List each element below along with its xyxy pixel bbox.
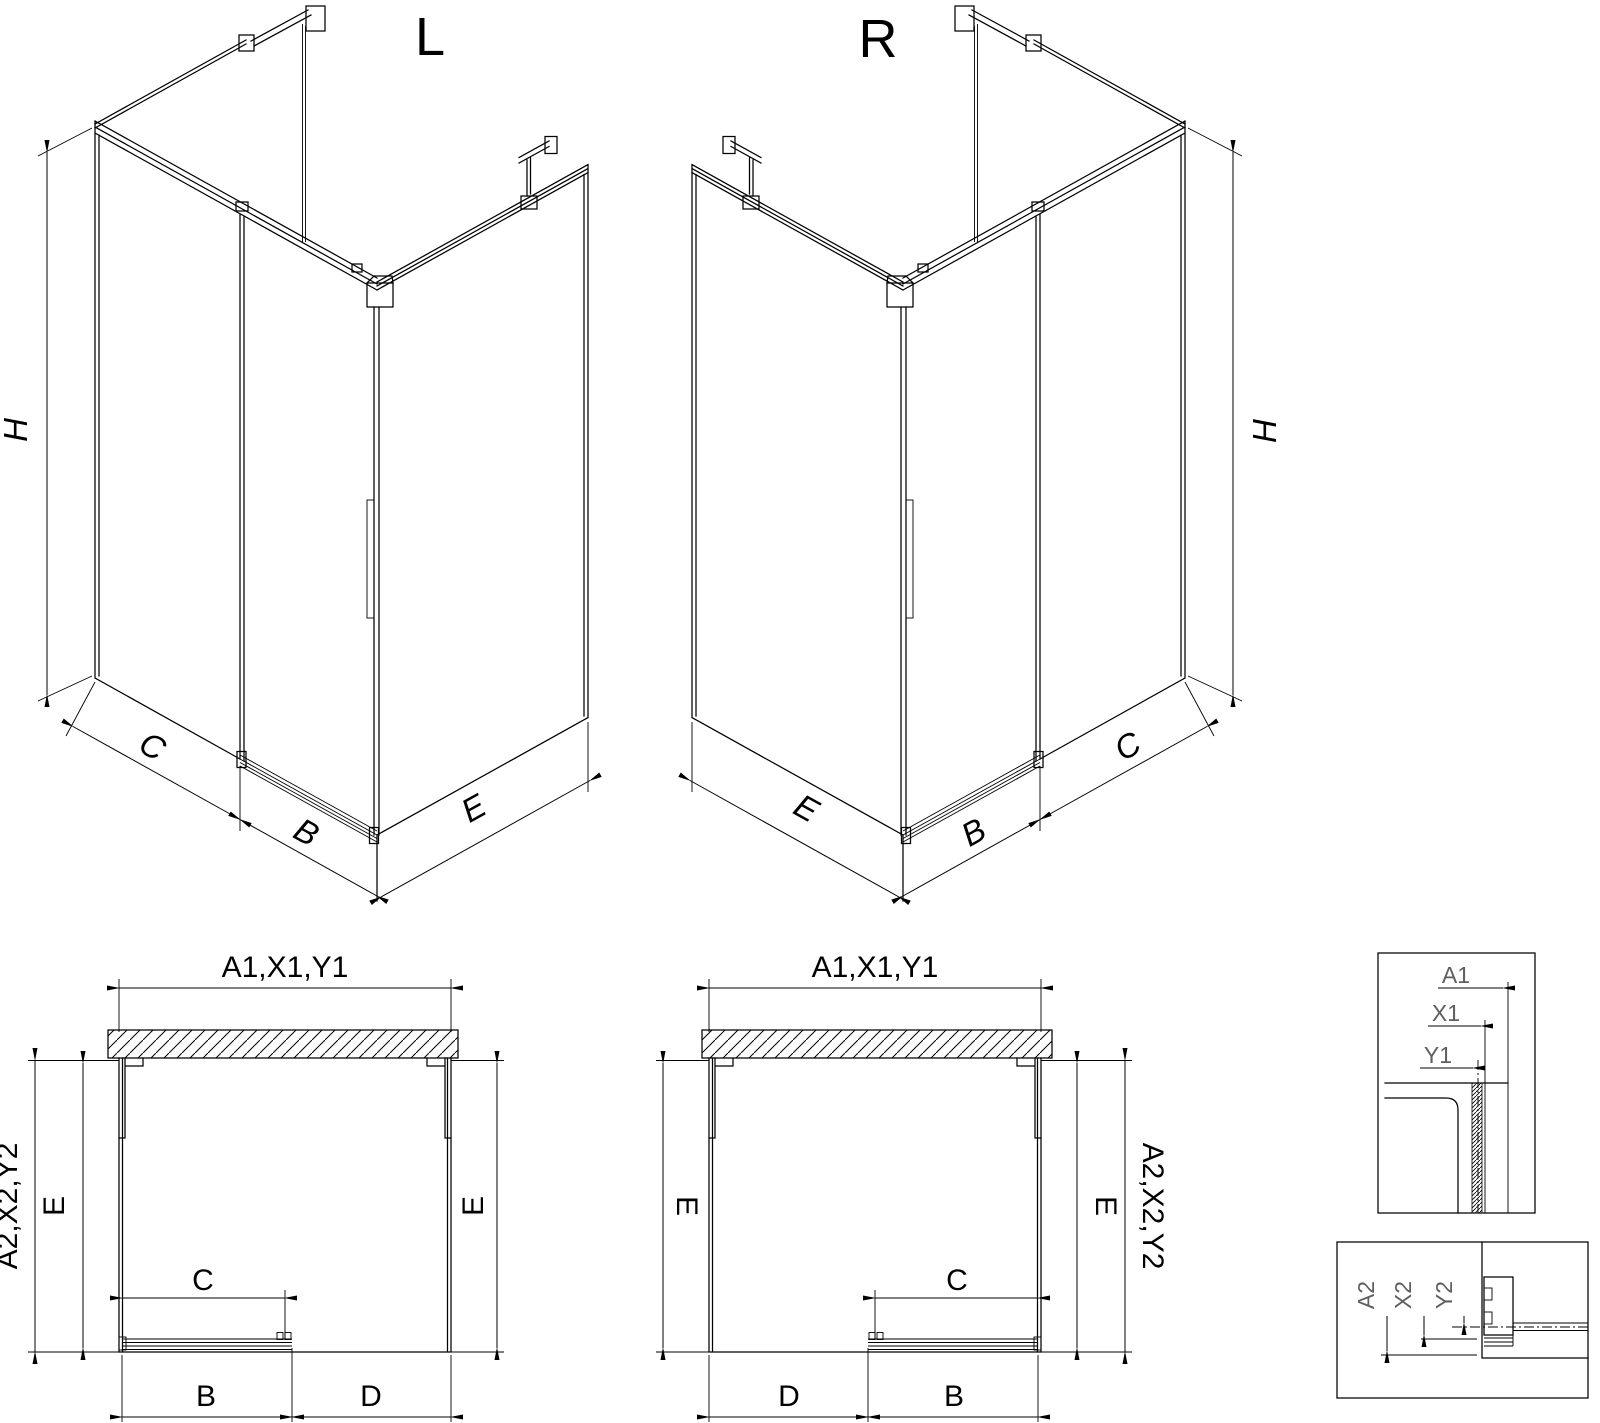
iso-view-right-geometry (690, 6, 1242, 901)
plan-left-depth-left-label: E (38, 1196, 71, 1216)
detail-x1-label: X1 (1432, 1000, 1460, 1026)
iso-view-left-geometry (38, 6, 590, 901)
detail-y1-label: Y1 (1424, 1042, 1452, 1068)
plan-left-width-label: A1,X1,Y1 (222, 951, 349, 984)
plan-right-fixed-label: D (778, 1380, 800, 1413)
iso-right-return-label: E (788, 786, 826, 830)
iso-left-return-label: E (455, 786, 493, 830)
plan-left-depth-outer-label: A2,X2,Y2 (0, 1143, 24, 1270)
plan-left-wall-hatch (108, 1030, 458, 1058)
detail-a1-label: A1 (1442, 962, 1470, 988)
iso-left-title: L (415, 7, 445, 67)
iso-left-panel-label: C (133, 724, 173, 768)
plan-left-opening-label: C (192, 1264, 214, 1297)
iso-view-right: R H C B E (690, 6, 1283, 901)
plan-left-fixed-label: D (360, 1380, 382, 1413)
shower-enclosure-drawing: L H C B E R H C B E A1,X1,Y1 A2,X2,Y2 E … (0, 0, 1600, 1423)
iso-right-title: R (859, 9, 898, 69)
detail-depth-profile-frame (1337, 1242, 1588, 1398)
plan-right-opening-label: C (946, 1264, 968, 1297)
plan-right-depth-left-label: E (670, 1196, 703, 1216)
detail-x2-label: X2 (1390, 1281, 1416, 1309)
plan-right-depth-right-label: E (1089, 1196, 1122, 1216)
detail-width-profile: A1 X1 Y1 (1378, 953, 1535, 1213)
iso-left-door-label: B (288, 810, 325, 853)
iso-right-door-label: B (955, 810, 992, 853)
plan-left-depth-right-label: E (457, 1196, 490, 1216)
plan-right-wall-hatch (702, 1030, 1052, 1058)
iso-right-height-label: H (1246, 418, 1283, 442)
plan-view-right: A1,X1,Y1 A2,X2,Y2 E E C B D (656, 951, 1169, 1422)
iso-right-panel-label: C (1108, 723, 1148, 767)
plan-view-left: A1,X1,Y1 A2,X2,Y2 E E C B D (0, 951, 504, 1422)
detail-depth-profile: A2 X2 Y2 (1337, 1242, 1588, 1398)
detail-a2-label: A2 (1353, 1281, 1379, 1309)
plan-right-door-label: B (944, 1380, 964, 1413)
plan-left-door-label: B (196, 1380, 216, 1413)
detail-y2-label: Y2 (1431, 1281, 1457, 1309)
iso-view-left: L H C B E (0, 6, 590, 901)
technical-drawing-sheet: L H C B E R H C B E A1,X1,Y1 A2,X2,Y2 E … (0, 0, 1600, 1423)
detail-width-glass-section (1472, 1083, 1482, 1213)
iso-left-height-label: H (0, 418, 34, 442)
plan-right-depth-outer-label: A2,X2,Y2 (1136, 1143, 1169, 1270)
plan-right-width-label: A1,X1,Y1 (812, 951, 939, 984)
